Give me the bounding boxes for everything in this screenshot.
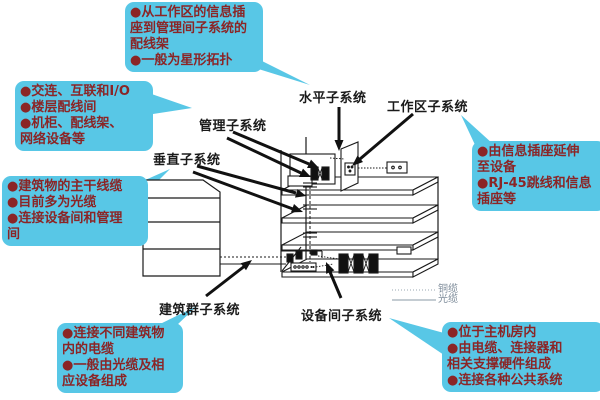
legend-lines	[392, 290, 436, 300]
callout-line: 相关支撑硬件组成	[447, 357, 599, 373]
callout-line: ●一般由光缆及相	[62, 358, 178, 374]
callout-line: ●连接各种公共系统	[447, 373, 599, 389]
workarea-partition-wall	[341, 142, 358, 191]
label-campus-subsystem: 建筑群子系统	[159, 299, 240, 318]
arrow-workarea	[352, 114, 413, 166]
legend-fiber-label: 光缆	[438, 295, 458, 305]
patch-rack	[311, 167, 318, 180]
left-building	[143, 180, 220, 276]
callout-line: ●机柜、配线架、	[20, 116, 148, 132]
callout-line: ●一般为星形拓扑	[130, 53, 258, 69]
patch-rack	[322, 167, 329, 180]
tail-equipment-room-note	[389, 318, 444, 355]
label-vertical-subsystem: 垂直子系统	[153, 149, 221, 168]
callout-line: 插座等	[477, 192, 600, 208]
callout-line: ●RJ-45跳线和信息	[477, 176, 600, 192]
label-management-subsystem: 管理子系统	[199, 115, 267, 134]
equipment-racks	[339, 254, 378, 273]
callout-line: ●建筑物的主干线缆	[7, 179, 143, 195]
callout-line: ●连接不同建筑物	[62, 326, 178, 342]
callout-line: ●由信息插座延伸	[477, 144, 600, 160]
label-horizontal-subsystem: 水平子系统	[299, 87, 367, 106]
label-workarea-subsystem: 工作区子系统	[387, 96, 468, 115]
left-building-outline	[143, 180, 220, 276]
arrow-horizontal	[335, 107, 344, 151]
callout-line: 至设备	[477, 160, 600, 176]
callout-line: 内的电缆	[62, 342, 178, 358]
label-equipment-room-subsystem: 设备间子系统	[301, 305, 382, 324]
callout-line: 配线架	[130, 37, 258, 53]
callout-line: ●从工作区的信息插	[130, 5, 258, 21]
callout-workarea-note: ●由信息插座延伸 至设备 ●RJ-45跳线和信息 插座等	[472, 141, 600, 211]
diagram-canvas: ●从工作区的信息插 座到管理间子系统的 配线架 ●一般为星形拓扑 ●交连、互联和…	[0, 0, 600, 400]
callout-line: 应设备组成	[62, 374, 178, 390]
callout-management-note: ●交连、互联和I/O ●楼层配线间 ●机柜、配线架、 网络设备等	[15, 81, 153, 151]
callout-line: ●由电缆、连接器和	[447, 341, 599, 357]
callout-line: 座到管理间子系统的	[130, 21, 258, 37]
callout-equipment-room-note: ●位于主机房内 ●由电缆、连接器和 相关支撑硬件组成 ●连接各种公共系统	[442, 322, 600, 392]
callout-line: ●位于主机房内	[447, 325, 599, 341]
callout-line: ●交连、互联和I/O	[20, 84, 148, 100]
callout-line: ●连接设备间和管理	[7, 211, 143, 227]
equipment-box	[397, 247, 411, 254]
callout-line: 间	[7, 227, 143, 243]
callout-vertical-note: ●建筑物的主干线缆 ●目前多为光缆 ●连接设备间和管理 间	[2, 176, 148, 246]
callout-line: ●楼层配线间	[20, 100, 148, 116]
workarea-desk	[387, 162, 407, 173]
callout-line: ●目前多为光缆	[7, 195, 143, 211]
callout-line: 网络设备等	[20, 132, 148, 148]
callout-campus-note: ●连接不同建筑物 内的电缆 ●一般由光缆及相 应设备组成	[57, 323, 183, 393]
patch-panel	[291, 263, 316, 271]
callout-horizontal-note: ●从工作区的信息插 座到管理间子系统的 配线架 ●一般为星形拓扑	[125, 2, 263, 72]
